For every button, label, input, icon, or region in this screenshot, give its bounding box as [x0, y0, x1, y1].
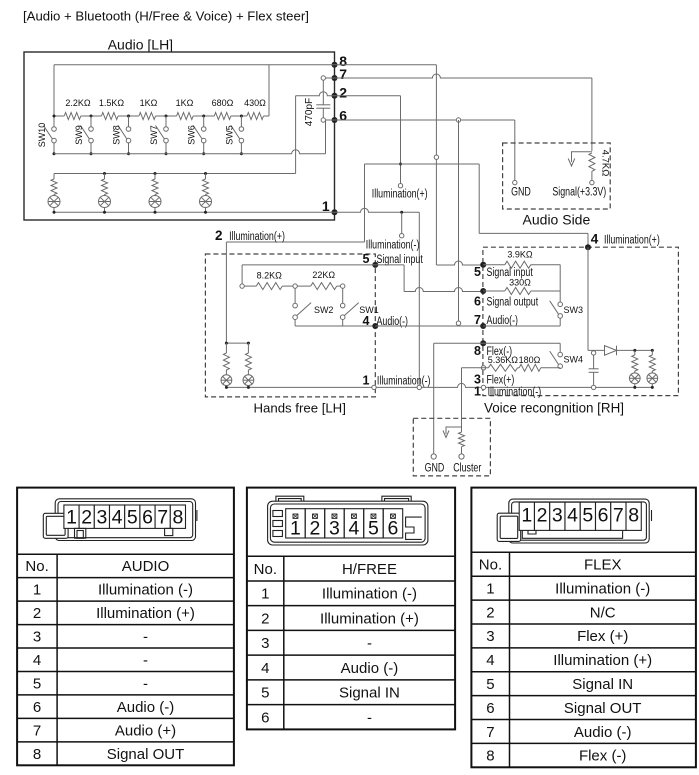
- svg-text:430Ω: 430Ω: [244, 98, 266, 108]
- svg-text:Audio (-): Audio (-): [341, 660, 399, 677]
- svg-text:SW4: SW4: [564, 355, 584, 365]
- svg-text:Hands free [LH]: Hands free [LH]: [254, 400, 346, 415]
- svg-text:5: 5: [582, 505, 593, 527]
- svg-text:SW2: SW2: [314, 305, 334, 315]
- svg-text:2: 2: [310, 518, 321, 540]
- svg-text:7: 7: [486, 724, 494, 741]
- svg-text:5: 5: [486, 676, 494, 693]
- svg-text:4: 4: [261, 660, 269, 677]
- svg-text:Audio (+): Audio (+): [115, 722, 176, 739]
- svg-text:Illumination (-): Illumination (-): [98, 582, 193, 599]
- svg-text:2.2KΩ: 2.2KΩ: [65, 98, 91, 108]
- svg-text:Illumination (+): Illumination (+): [553, 652, 652, 669]
- svg-text:6: 6: [388, 518, 399, 540]
- svg-text:5.36KΩ: 5.36KΩ: [488, 355, 519, 365]
- svg-text:Illumination(-): Illumination(-): [488, 386, 542, 398]
- svg-text:Illumination(+): Illumination(+): [604, 235, 660, 247]
- svg-text:4: 4: [591, 232, 599, 247]
- svg-text:GND: GND: [425, 462, 445, 474]
- svg-text:5: 5: [33, 676, 41, 693]
- svg-text:Illumination (+): Illumination (+): [320, 610, 419, 627]
- svg-text:1KΩ: 1KΩ: [176, 98, 194, 108]
- svg-text:180Ω: 180Ω: [519, 355, 541, 365]
- svg-text:Signal OUT: Signal OUT: [107, 746, 185, 763]
- svg-text:7: 7: [157, 507, 168, 529]
- svg-text:1KΩ: 1KΩ: [140, 98, 158, 108]
- svg-text:8: 8: [486, 748, 494, 765]
- svg-text:SW7: SW7: [149, 125, 159, 145]
- svg-text:4: 4: [363, 314, 370, 328]
- svg-text:Audio (-): Audio (-): [117, 699, 175, 716]
- svg-text:1: 1: [290, 518, 301, 540]
- svg-text:4: 4: [349, 518, 360, 540]
- svg-text:1: 1: [486, 580, 494, 597]
- svg-text:5: 5: [127, 507, 138, 529]
- svg-text:6: 6: [142, 507, 153, 529]
- svg-text:FLEX: FLEX: [584, 557, 622, 574]
- svg-text:2: 2: [81, 507, 92, 529]
- svg-text:7: 7: [339, 66, 347, 82]
- svg-text:Illumination (-): Illumination (-): [555, 580, 650, 597]
- svg-text:1: 1: [66, 507, 77, 529]
- svg-text:5: 5: [261, 685, 269, 702]
- svg-text:2: 2: [261, 610, 269, 627]
- svg-text:3: 3: [33, 629, 41, 646]
- svg-text:Signal(+3.3V): Signal(+3.3V): [552, 187, 606, 199]
- svg-text:5: 5: [474, 265, 481, 279]
- svg-text:SW3: SW3: [564, 305, 584, 315]
- svg-text:Flex(+): Flex(+): [487, 375, 515, 387]
- svg-text:4.7KΩ: 4.7KΩ: [600, 150, 611, 177]
- svg-text:7: 7: [613, 505, 624, 527]
- svg-text:Signal IN: Signal IN: [339, 685, 400, 702]
- svg-text:1: 1: [33, 582, 41, 599]
- svg-text:5: 5: [368, 518, 379, 540]
- svg-text:8: 8: [628, 505, 639, 527]
- svg-text:2: 2: [339, 85, 347, 101]
- svg-text:2: 2: [215, 228, 223, 243]
- svg-text:No.: No.: [25, 558, 48, 575]
- svg-text:1: 1: [474, 384, 481, 398]
- svg-text:8: 8: [474, 344, 481, 358]
- svg-text:8: 8: [33, 746, 41, 763]
- svg-text:22KΩ: 22KΩ: [312, 270, 335, 280]
- svg-text:2: 2: [33, 605, 41, 622]
- svg-text:Signal input: Signal input: [377, 254, 424, 266]
- svg-text:[Audio + Bluetooth (H/Free & V: [Audio + Bluetooth (H/Free & Voice) + Fl…: [23, 9, 309, 24]
- svg-text:2: 2: [486, 604, 494, 621]
- svg-text:5: 5: [363, 252, 370, 266]
- svg-text:8: 8: [172, 507, 183, 529]
- svg-text:6: 6: [474, 295, 481, 309]
- svg-text:SW5: SW5: [224, 125, 234, 145]
- svg-text:7: 7: [474, 313, 481, 327]
- svg-text:Signal IN: Signal IN: [572, 676, 633, 693]
- svg-text:N/C: N/C: [590, 604, 616, 621]
- svg-text:6: 6: [339, 108, 347, 124]
- svg-text:6: 6: [261, 709, 269, 726]
- svg-text:H/FREE: H/FREE: [342, 561, 397, 578]
- svg-text:Illumination (-): Illumination (-): [322, 586, 417, 603]
- svg-text:No.: No.: [254, 561, 277, 578]
- svg-text:-: -: [143, 676, 148, 693]
- svg-text:SW10: SW10: [37, 123, 47, 148]
- svg-text:1: 1: [322, 198, 330, 214]
- svg-text:Audio Side: Audio Side: [523, 212, 591, 228]
- svg-text:1.5KΩ: 1.5KΩ: [99, 98, 125, 108]
- svg-text:3: 3: [96, 507, 107, 529]
- svg-text:4: 4: [112, 507, 123, 529]
- svg-text:3: 3: [329, 518, 340, 540]
- svg-text:680Ω: 680Ω: [212, 98, 234, 108]
- svg-text:Voice recongnition [RH]: Voice recongnition [RH]: [484, 400, 624, 415]
- svg-text:3: 3: [486, 628, 494, 645]
- svg-text:Illumination(+): Illumination(+): [372, 189, 428, 201]
- svg-text:Signal OUT: Signal OUT: [564, 700, 642, 717]
- svg-text:3.9KΩ: 3.9KΩ: [507, 250, 533, 260]
- svg-text:Audio (-): Audio (-): [574, 724, 632, 741]
- svg-text:1: 1: [363, 374, 370, 388]
- svg-text:4: 4: [567, 505, 578, 527]
- svg-text:Flex (-): Flex (-): [579, 748, 627, 765]
- svg-text:Illumination(+): Illumination(+): [229, 231, 285, 243]
- svg-text:Audio(-): Audio(-): [487, 315, 519, 327]
- svg-text:6: 6: [33, 699, 41, 716]
- svg-text:-: -: [143, 629, 148, 646]
- svg-text:7: 7: [33, 722, 41, 739]
- svg-text:470pF: 470pF: [304, 98, 315, 126]
- svg-text:6: 6: [486, 700, 494, 717]
- svg-text:-: -: [367, 709, 372, 726]
- svg-text:3: 3: [552, 505, 563, 527]
- svg-text:AUDIO: AUDIO: [122, 558, 170, 575]
- svg-text:-: -: [143, 652, 148, 669]
- svg-text:Signal output: Signal output: [487, 297, 539, 309]
- svg-text:2: 2: [537, 505, 548, 527]
- svg-text:-: -: [367, 635, 372, 652]
- svg-text:4: 4: [33, 652, 41, 669]
- svg-text:1: 1: [521, 505, 532, 527]
- svg-text:No.: No.: [479, 557, 502, 574]
- svg-text:Cluster: Cluster: [453, 462, 481, 474]
- svg-text:330Ω: 330Ω: [509, 278, 531, 288]
- svg-text:Illumination(-): Illumination(-): [377, 376, 431, 388]
- svg-text:1: 1: [261, 586, 269, 603]
- svg-text:GND: GND: [511, 187, 531, 199]
- svg-text:3: 3: [261, 635, 269, 652]
- svg-text:Illumination(-): Illumination(-): [366, 239, 420, 251]
- svg-text:4: 4: [486, 652, 494, 669]
- svg-text:Illumination (+): Illumination (+): [96, 605, 195, 622]
- svg-text:SW8: SW8: [112, 125, 122, 145]
- svg-text:6: 6: [598, 505, 609, 527]
- svg-text:Flex (+): Flex (+): [577, 628, 628, 645]
- svg-text:SW9: SW9: [74, 125, 84, 145]
- svg-text:SW6: SW6: [187, 125, 197, 145]
- svg-text:Audio [LH]: Audio [LH]: [108, 37, 173, 53]
- svg-text:8.2KΩ: 8.2KΩ: [257, 271, 283, 281]
